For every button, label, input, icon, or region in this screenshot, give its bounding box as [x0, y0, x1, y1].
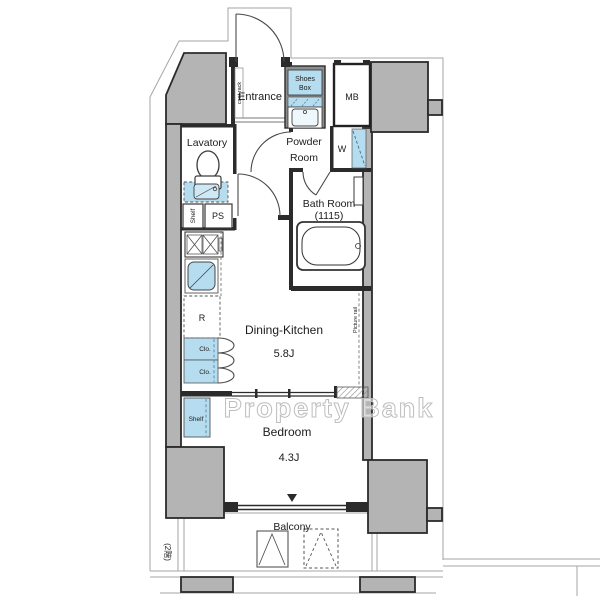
meter-box-tick-right: [363, 60, 370, 65]
entrance-label: Entrance: [238, 91, 282, 103]
closet-1-label: Clo.: [199, 346, 211, 353]
powder-room-label-1: Powder: [286, 136, 322, 148]
pipe-space-label: PS: [212, 211, 224, 221]
wall-block-top-left: [166, 53, 226, 124]
entrance-door-arc: [236, 14, 284, 62]
lavatory-label: Lavatory: [187, 137, 228, 149]
bath-room-label-1: Bath Room: [303, 198, 356, 210]
balcony-unit-dashed-triangle: [306, 532, 336, 566]
powder-washer-divider: [330, 126, 334, 170]
bathtub-inner: [302, 227, 360, 265]
bath-door-leaf: [316, 172, 330, 195]
shoes-box-label-2: Box: [299, 85, 312, 92]
floor-note-label: (2階): [163, 543, 173, 561]
toilet-bowl: [197, 151, 219, 179]
watermark: Property Bank: [224, 393, 435, 423]
lavatory-east-wall: [233, 124, 237, 174]
bath-south-wall: [291, 286, 371, 291]
bedroom-shelf-label: Shelf: [189, 416, 204, 423]
picture-rail-label: Picture rail: [353, 307, 359, 333]
wall-block-bottom-right: [368, 460, 427, 533]
bath-counter: [354, 177, 363, 205]
dining-kitchen-label: Dining-Kitchen: [245, 323, 323, 337]
bedroom-label: Bedroom: [263, 425, 312, 439]
balcony-pillar-left: [181, 577, 233, 592]
hall-door-arc: [238, 174, 280, 216]
wall-tab-top-right: [428, 100, 442, 115]
entrance-top-wall: [284, 62, 292, 66]
powder-room-label-2: Room: [290, 152, 318, 164]
powder-sink-bowl: [292, 109, 318, 126]
floorplan-svg: Entrance coat rack Shoes Box MB Lavatory…: [0, 0, 600, 600]
bedroom-size: 4.3J: [279, 452, 300, 464]
wall-tab-bottom-right: [427, 508, 442, 521]
powder-room-door-arc: [251, 132, 291, 172]
refrigerator-label: R: [199, 313, 206, 323]
meter-box-label: MB: [345, 92, 359, 102]
lavatory-shelf-label: Shelf: [190, 208, 197, 223]
shoes-box-label-1: Shoes: [295, 76, 315, 83]
coat-rack-label: coat rack: [237, 82, 243, 105]
window-center-marker: [287, 494, 297, 502]
window-jamb-right: [346, 502, 368, 512]
balcony-unit-solid-triangle: [259, 534, 285, 565]
dining-kitchen-size: 5.8J: [274, 348, 295, 360]
entrance-west-wall: [231, 64, 235, 124]
meter-box-tick-left: [334, 60, 341, 65]
bath-door-arc: [303, 172, 316, 195]
bath-north-wall-left: [289, 168, 303, 172]
balcony-label: Balcony: [273, 521, 311, 533]
wall-column-left: [166, 124, 181, 447]
bath-west-wall: [289, 170, 293, 290]
bath-north-wall-right: [330, 168, 371, 172]
floorplan-canvas: Entrance coat rack Shoes Box MB Lavatory…: [0, 0, 600, 600]
wall-block-bottom-left: [166, 447, 224, 518]
washer-label: W: [338, 144, 347, 154]
balcony-unit-dashed: [304, 529, 338, 568]
wall-block-top-right: [371, 62, 428, 132]
window-jamb-left: [224, 502, 238, 512]
closet-bifold-doors: [218, 338, 234, 383]
closet-2-label: Clo.: [199, 369, 211, 376]
bath-room-label-2: (1115): [315, 210, 344, 222]
lavatory-north-wall: [181, 124, 235, 128]
balcony-pillar-right: [360, 577, 415, 592]
